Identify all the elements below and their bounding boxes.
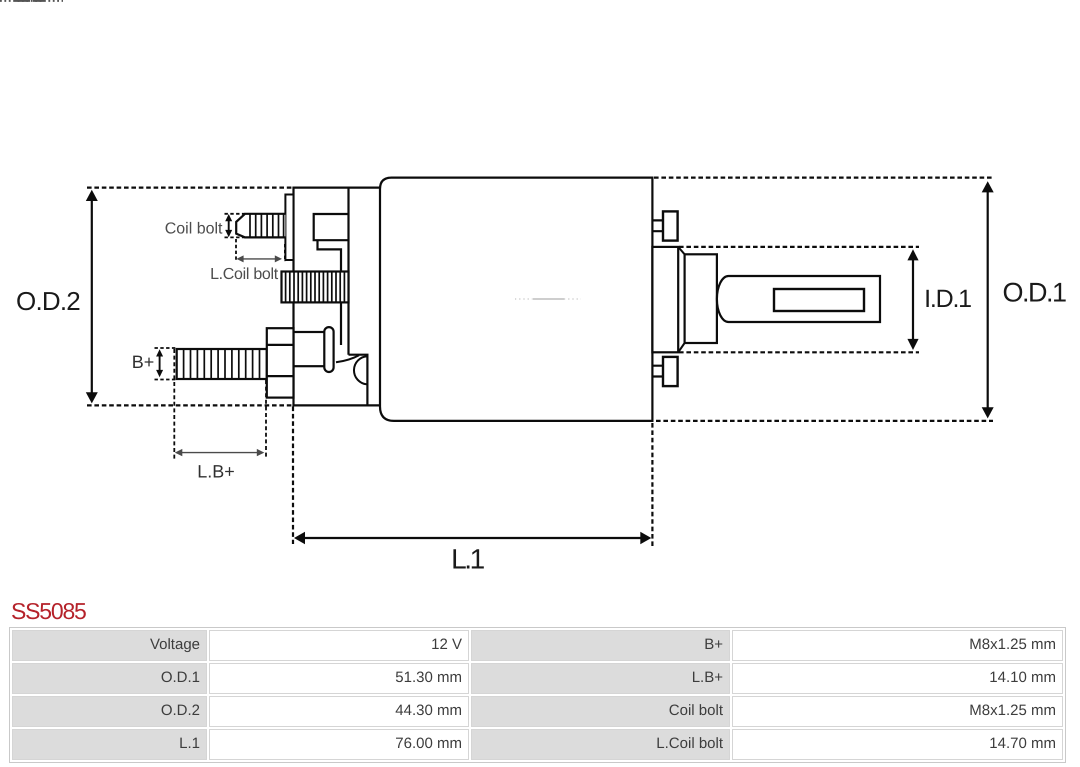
svg-text:O.D.1: O.D.1 <box>1002 278 1066 308</box>
svg-text:L.1: L.1 <box>451 544 485 575</box>
svg-text:B+: B+ <box>132 352 155 372</box>
svg-text:I.D.1: I.D.1 <box>924 285 971 313</box>
svg-text:O.D.2: O.D.2 <box>16 286 80 316</box>
svg-text:L.Coil bolt: L.Coil bolt <box>210 266 279 283</box>
svg-text:Coil bolt: Coil bolt <box>165 221 223 238</box>
svg-text:L.B+: L.B+ <box>197 462 235 482</box>
